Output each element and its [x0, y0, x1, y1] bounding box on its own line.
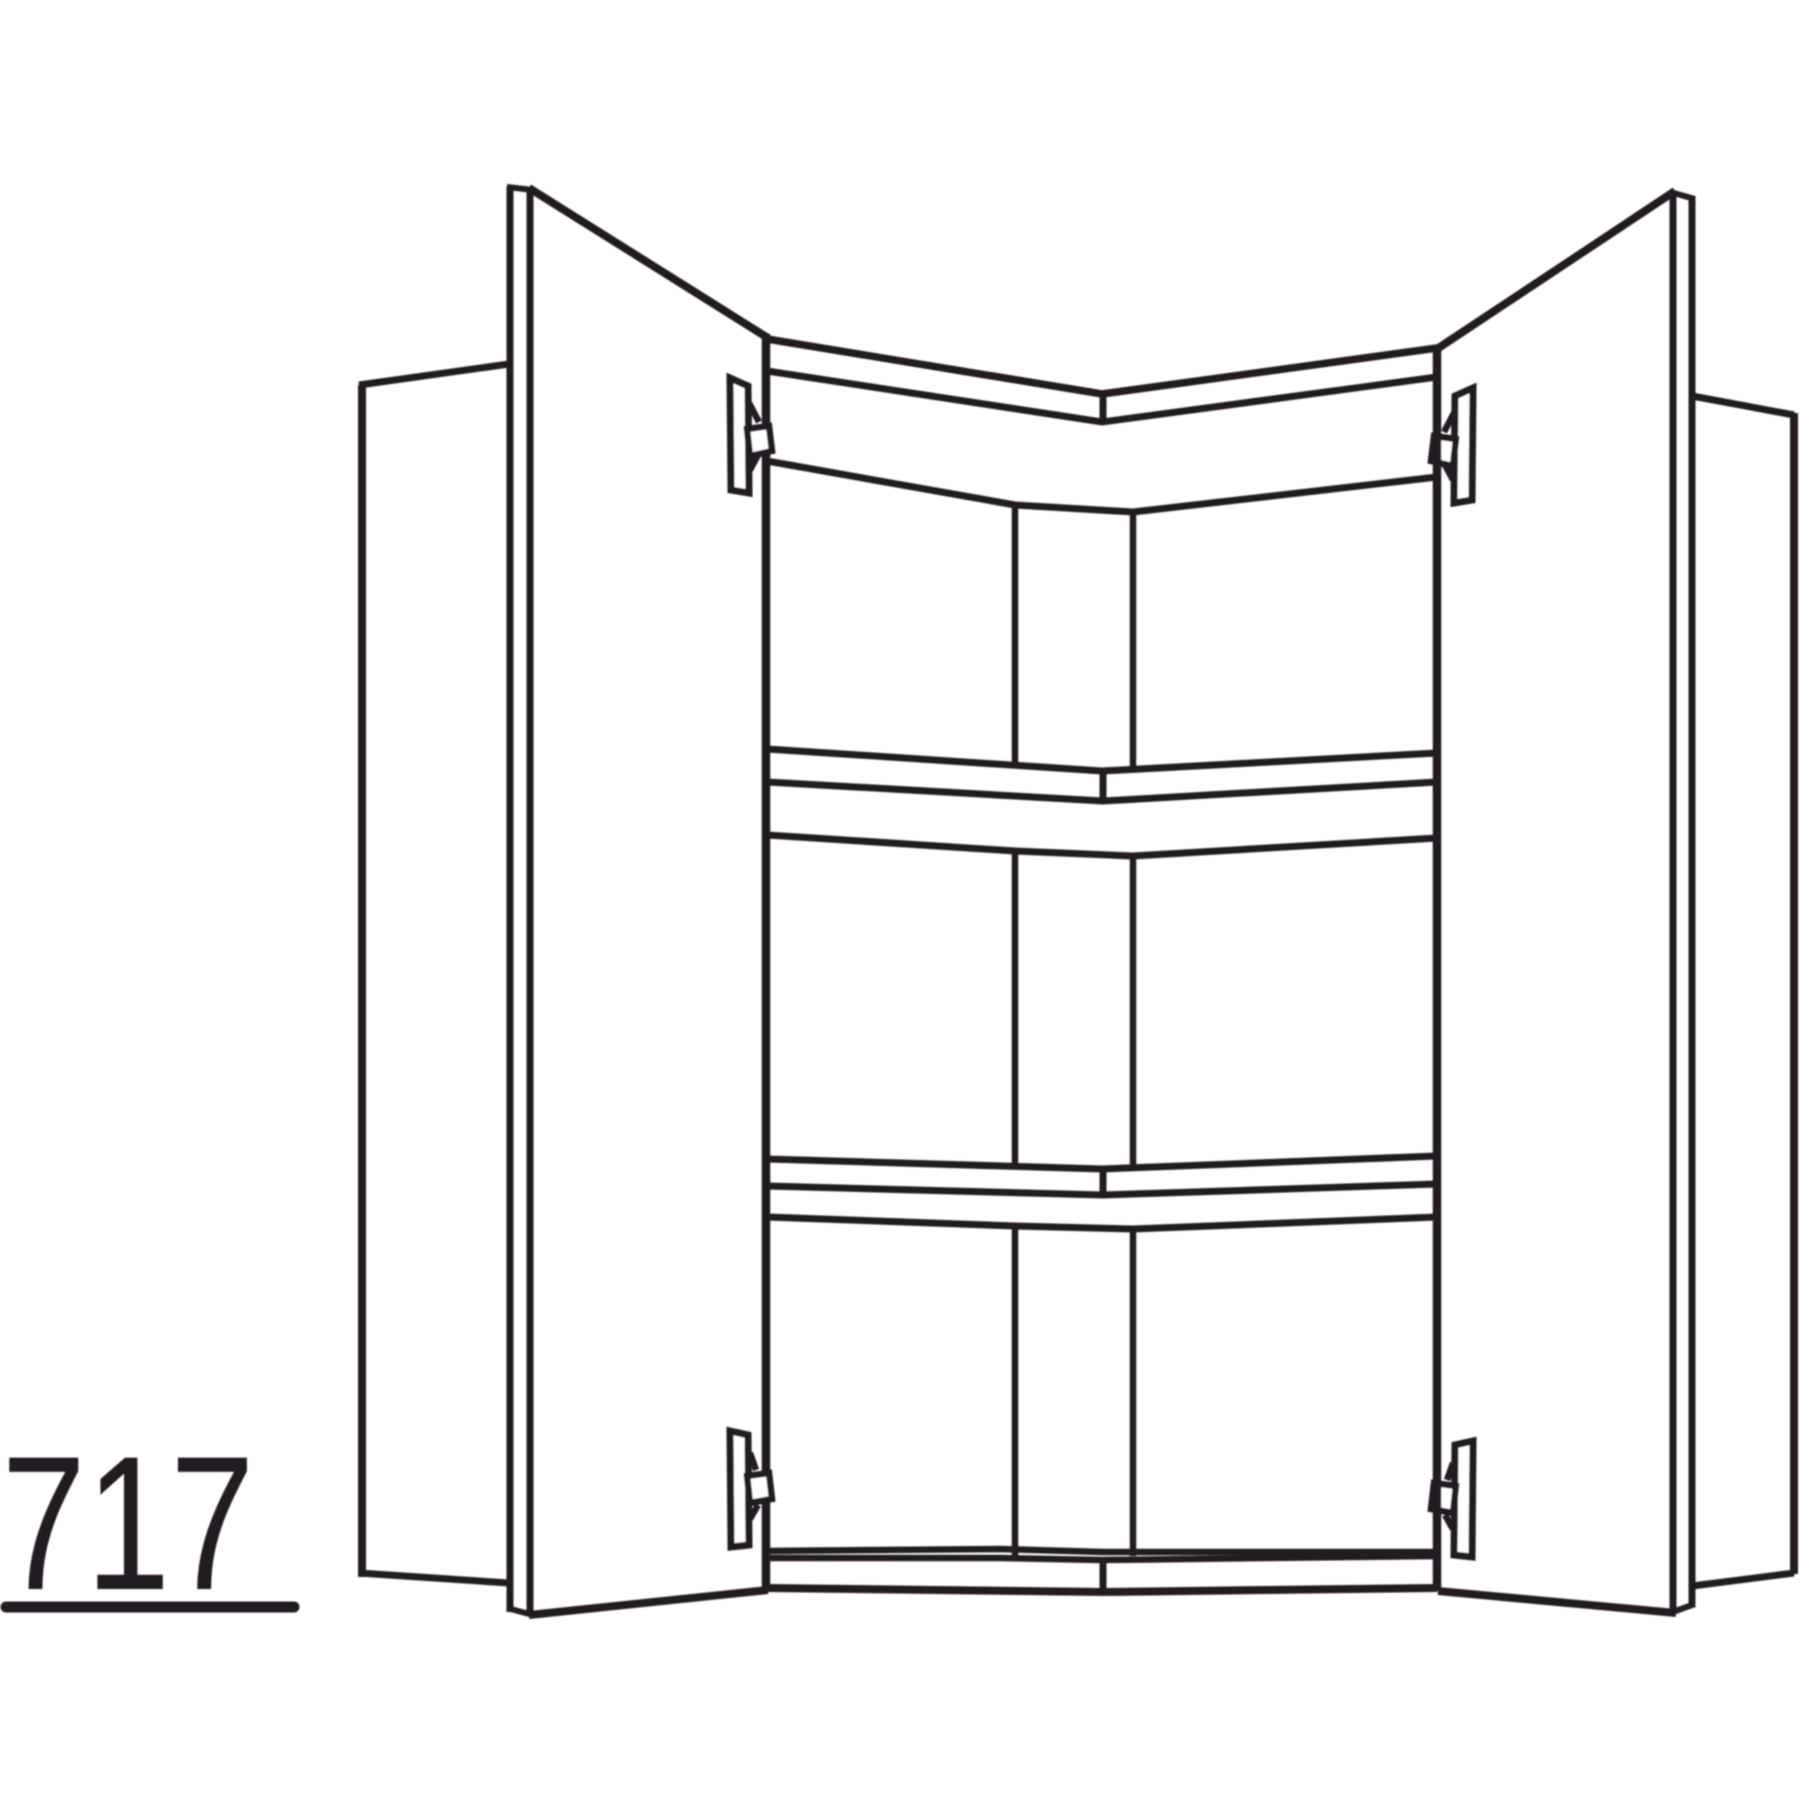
svg-text:717: 717	[2, 1416, 255, 1630]
